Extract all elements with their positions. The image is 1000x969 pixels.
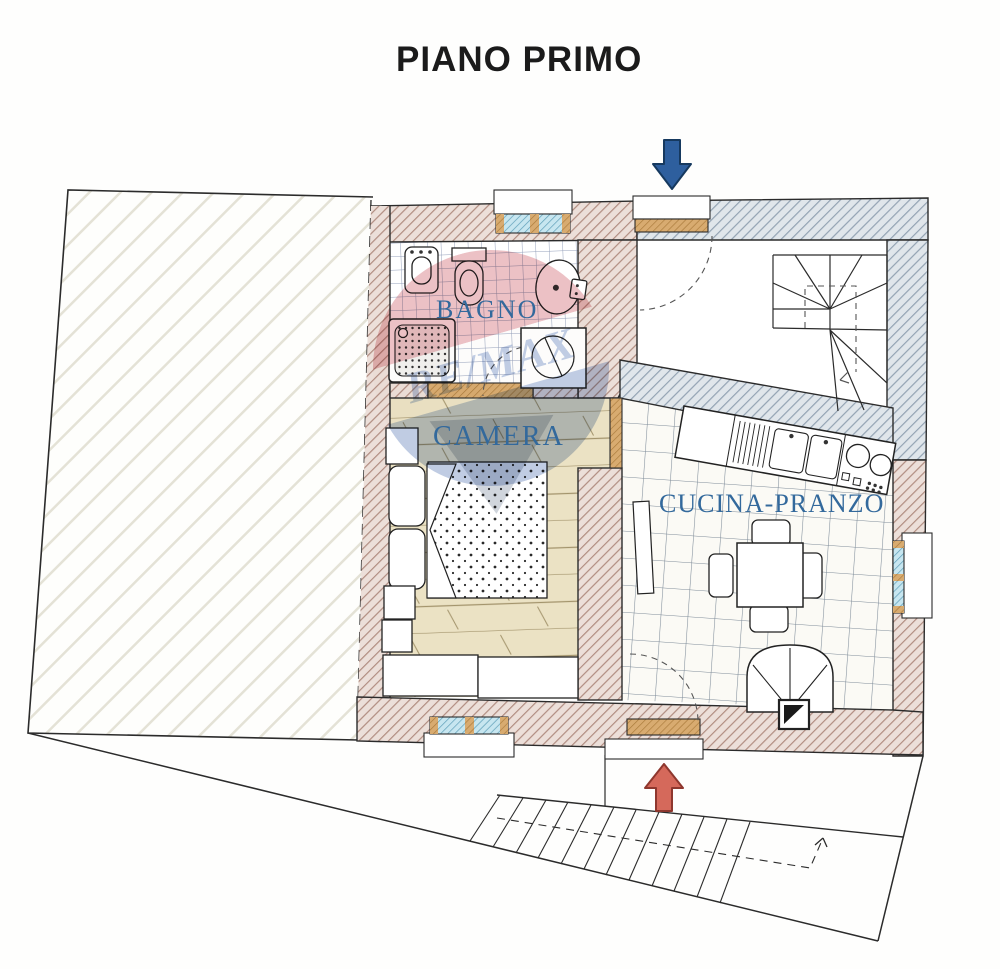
bathroom-window	[494, 190, 572, 214]
nightstand	[384, 586, 415, 619]
room-label-bedroom: CAMERA	[433, 421, 565, 453]
terrace	[28, 190, 373, 740]
kitchen-door-threshold	[627, 719, 700, 735]
external-staircase	[28, 733, 923, 941]
wardrobe	[383, 655, 578, 698]
entrance-arrow-down-icon	[652, 139, 692, 196]
page-title: PIANO PRIMO	[396, 40, 642, 80]
room-label-kitchen: CUCINA-PRANZO	[659, 489, 884, 519]
kitchen-window-recess	[902, 533, 932, 618]
chair	[752, 520, 790, 546]
bedroom-kitchen-threshold	[610, 398, 622, 468]
chair	[750, 605, 788, 632]
floor-plan: RE/MAX PIANO PRIMO BAGNO CAMERA CUCINA-P…	[0, 0, 1000, 969]
dining-table	[737, 543, 803, 607]
kitchen-door-recess	[605, 739, 703, 759]
entrance-arrow-up-icon	[644, 763, 684, 818]
entry-door-threshold	[635, 219, 708, 232]
dresser	[382, 620, 412, 652]
room-label-bathroom: BAGNO	[436, 295, 538, 325]
chair	[709, 554, 733, 597]
bedroom-window-recess	[424, 733, 514, 757]
entry-door-recess	[633, 196, 710, 219]
flue-symbol	[779, 700, 809, 729]
